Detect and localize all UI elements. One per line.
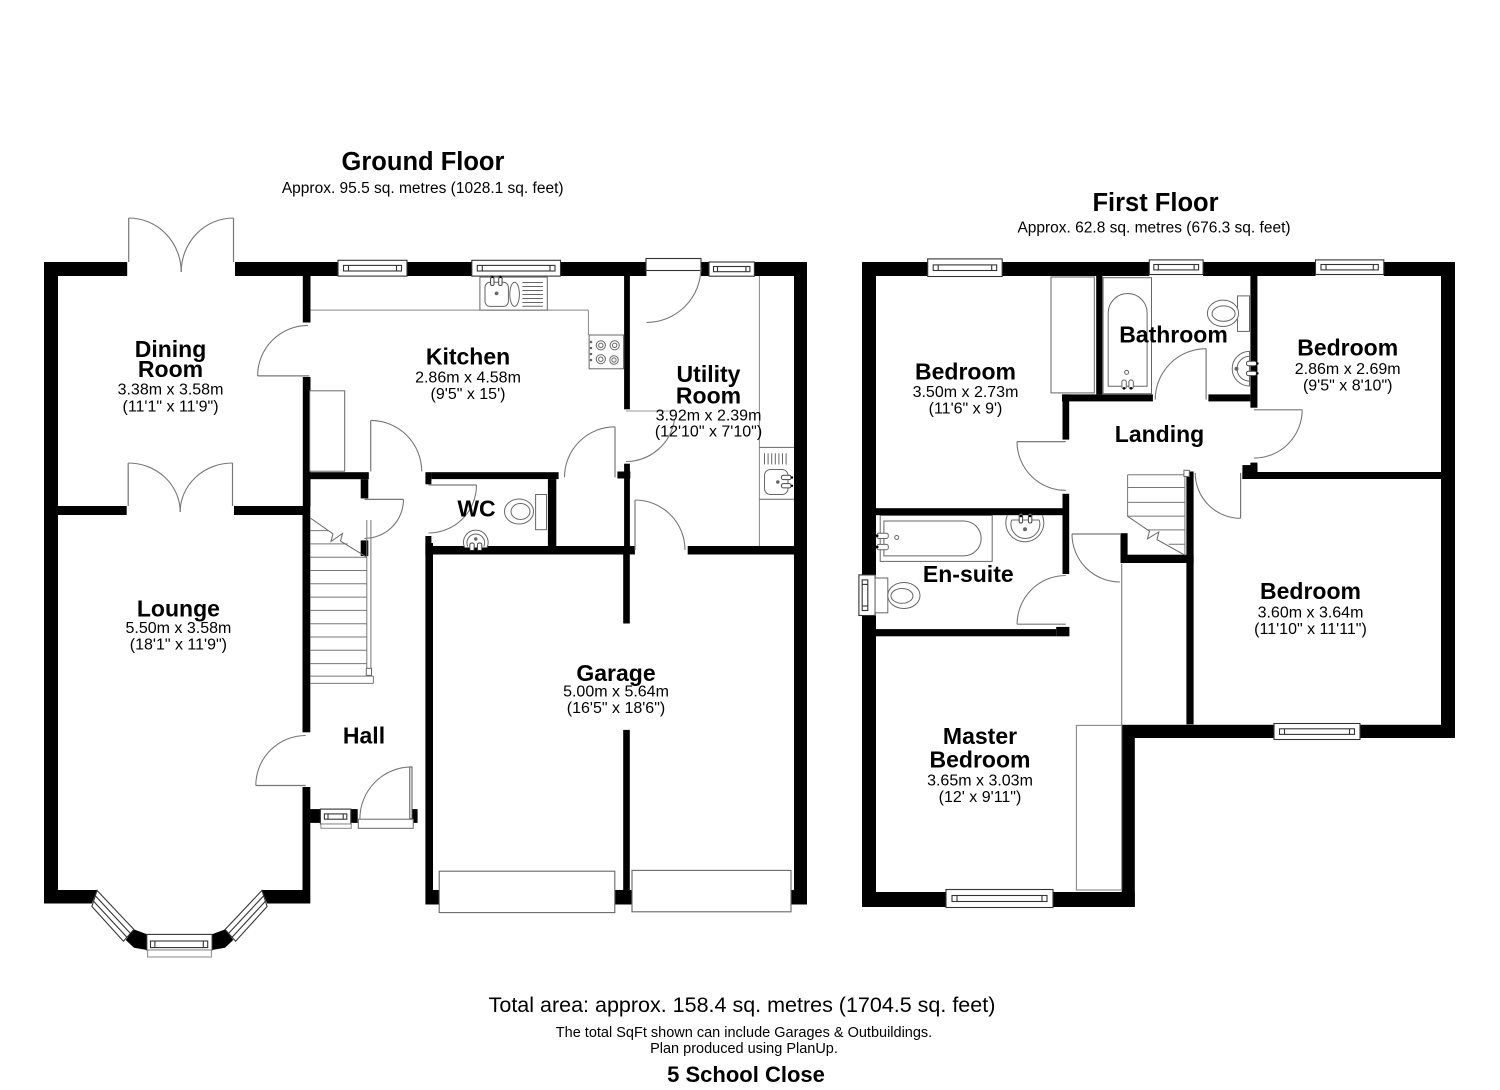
svg-text:(12'10" x 7'10"): (12'10" x 7'10") bbox=[655, 424, 762, 441]
svg-text:First Floor: First Floor bbox=[1092, 189, 1218, 217]
svg-text:Bedroom: Bedroom bbox=[1260, 578, 1361, 604]
svg-text:(12' x 9'11"): (12' x 9'11") bbox=[939, 789, 1022, 806]
svg-text:WC: WC bbox=[457, 496, 495, 522]
svg-text:(16'5" x 18'6"): (16'5" x 18'6") bbox=[567, 700, 665, 717]
svg-text:Room: Room bbox=[676, 382, 741, 408]
svg-text:Bedroom: Bedroom bbox=[915, 359, 1016, 385]
svg-text:Hall: Hall bbox=[343, 722, 385, 748]
svg-text:En-suite: En-suite bbox=[923, 561, 1014, 587]
svg-text:Ground Floor: Ground Floor bbox=[342, 148, 505, 176]
svg-text:2.86m x 2.69m: 2.86m x 2.69m bbox=[1295, 361, 1401, 378]
svg-text:3.92m x 2.39m: 3.92m x 2.39m bbox=[656, 407, 762, 424]
svg-text:Master: Master bbox=[943, 723, 1017, 749]
svg-text:(11'1" x 11'9"): (11'1" x 11'9") bbox=[122, 399, 218, 416]
svg-text:5 School Close: 5 School Close bbox=[667, 1062, 825, 1087]
svg-text:Bathroom: Bathroom bbox=[1119, 322, 1228, 348]
svg-text:3.65m x 3.03m: 3.65m x 3.03m bbox=[927, 772, 1033, 789]
svg-text:5.00m x 5.64m: 5.00m x 5.64m bbox=[563, 683, 669, 700]
svg-text:5.50m x 3.58m: 5.50m x 3.58m bbox=[125, 620, 231, 637]
svg-text:Room: Room bbox=[138, 356, 203, 382]
svg-text:Bedroom: Bedroom bbox=[930, 746, 1031, 772]
svg-text:(11'10" x 11'11"): (11'10" x 11'11") bbox=[1254, 621, 1367, 638]
svg-text:3.38m x 3.58m: 3.38m x 3.58m bbox=[118, 382, 224, 399]
svg-text:(9'5" x 8'10"): (9'5" x 8'10") bbox=[1303, 377, 1393, 394]
svg-text:Bedroom: Bedroom bbox=[1297, 335, 1398, 361]
svg-text:3.50m x 2.73m: 3.50m x 2.73m bbox=[913, 384, 1019, 401]
svg-text:The total SqFt shown can inclu: The total SqFt shown can include Garages… bbox=[556, 1025, 932, 1041]
svg-text:Lounge: Lounge bbox=[137, 596, 220, 622]
svg-text:Garage: Garage bbox=[576, 660, 655, 686]
svg-text:Plan produced using PlanUp.: Plan produced using PlanUp. bbox=[650, 1041, 838, 1057]
svg-text:Kitchen: Kitchen bbox=[426, 344, 510, 370]
svg-text:Approx. 95.5 sq. metres (1028.: Approx. 95.5 sq. metres (1028.1 sq. feet… bbox=[282, 180, 564, 197]
svg-text:Landing: Landing bbox=[1115, 421, 1204, 447]
svg-text:3.60m x 3.64m: 3.60m x 3.64m bbox=[1258, 605, 1364, 622]
svg-text:(9'5" x 15'): (9'5" x 15') bbox=[431, 386, 506, 403]
svg-text:Approx. 62.8 sq. metres (676.3: Approx. 62.8 sq. metres (676.3 sq. feet) bbox=[1017, 220, 1290, 237]
svg-text:2.86m x 4.58m: 2.86m x 4.58m bbox=[415, 370, 521, 387]
svg-text:Total area: approx. 158.4 sq.: Total area: approx. 158.4 sq. metres (17… bbox=[489, 993, 996, 1017]
svg-text:(11'6" x 9'): (11'6" x 9') bbox=[929, 400, 1003, 417]
svg-text:(18'1" x 11'9"): (18'1" x 11'9") bbox=[130, 636, 227, 653]
